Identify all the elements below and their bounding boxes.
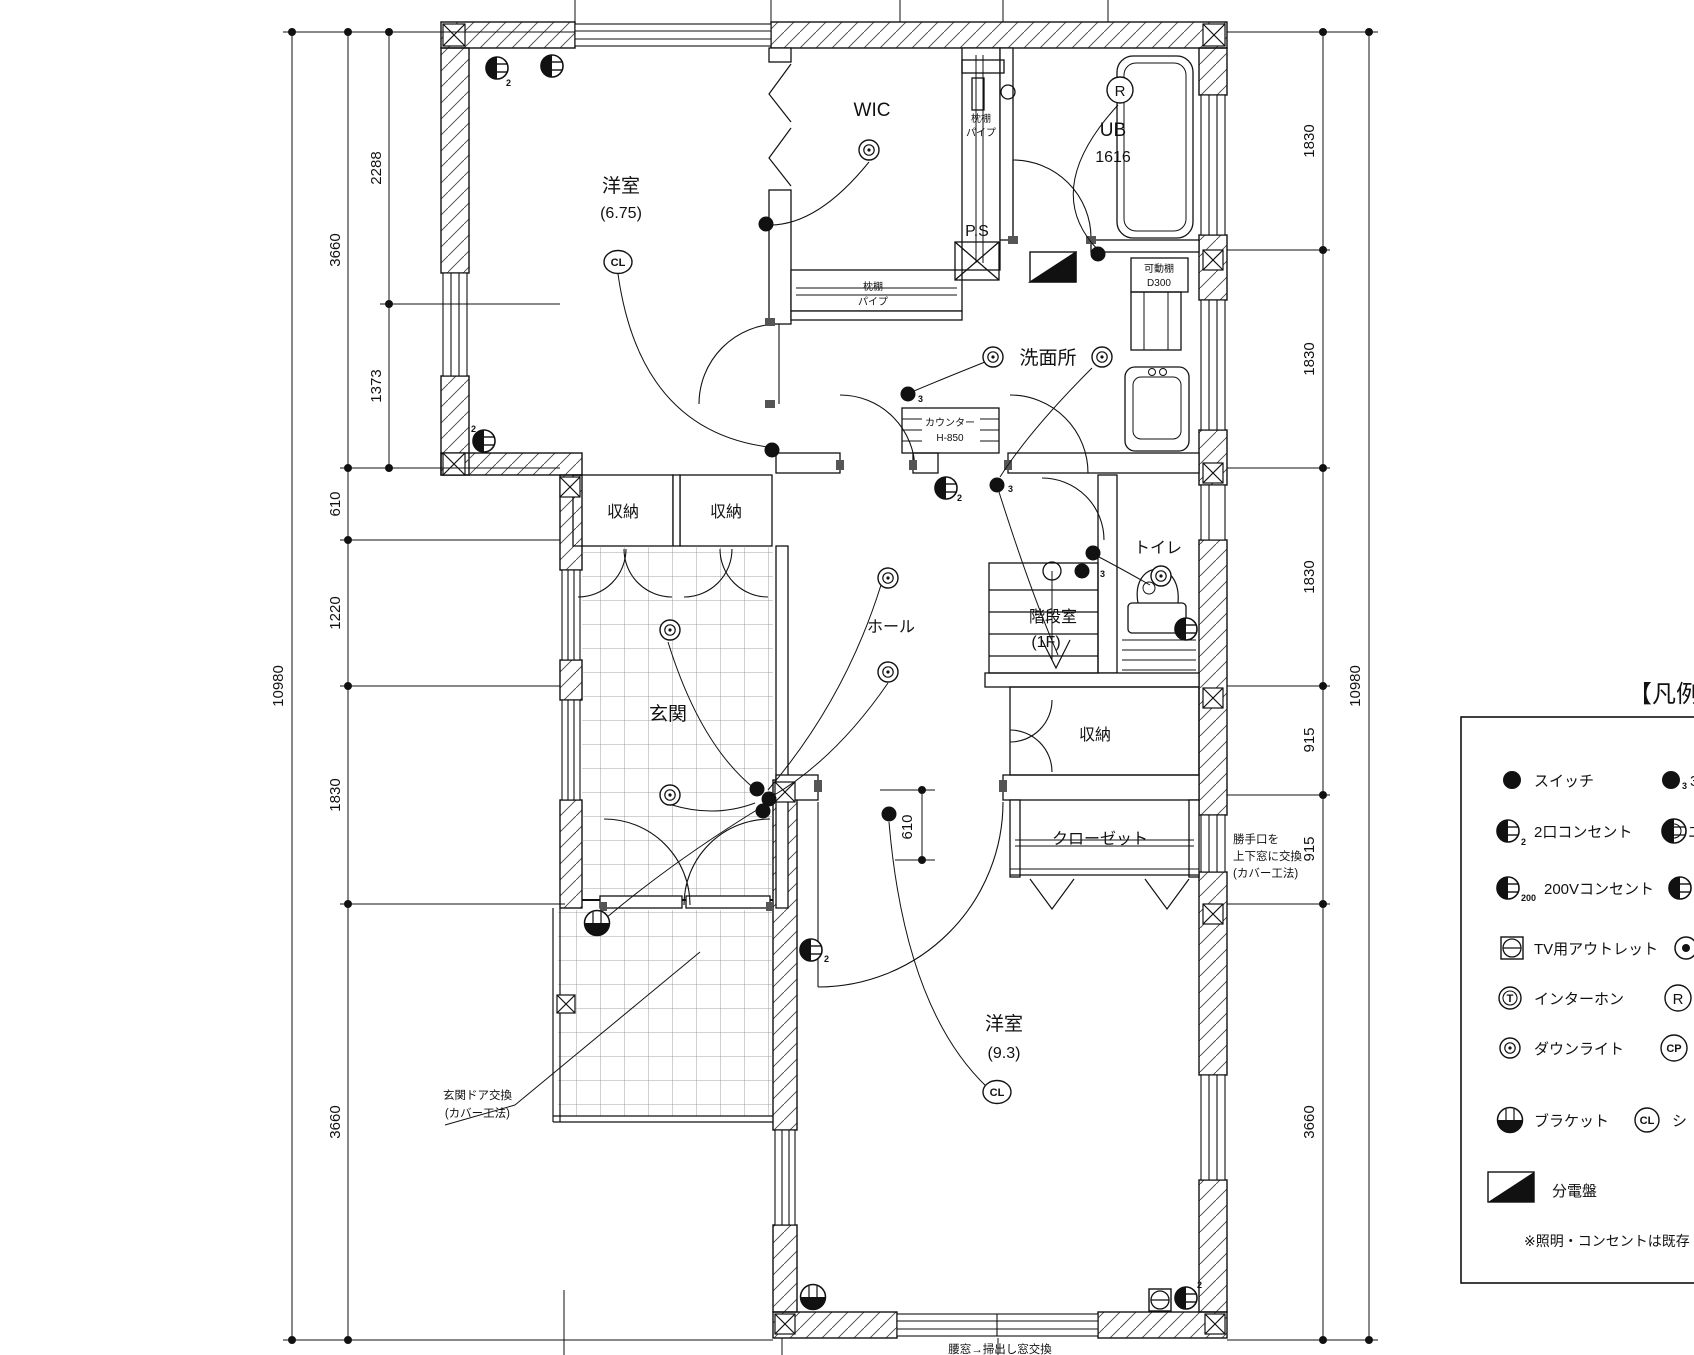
dim-right-1830b: 1830 [1301,342,1318,375]
window-right-ub [1201,95,1225,235]
label-kadou-dana-1: 可動棚 [1144,262,1174,275]
tv-outlet-93 [1149,1289,1171,1311]
label-youshitsu93: 洋室 [985,1013,1023,1035]
window-left-youshitsu675 [443,273,467,376]
window-top [575,24,771,46]
sub3-toire: 3 [1100,569,1105,579]
window-right-lower [1201,1075,1225,1180]
annotation-katteguchi-1: 勝手口を [1233,832,1279,846]
label-makura-side-1: 枕棚 [971,112,991,125]
sub3-hall: 3 [1008,484,1013,494]
switch-youshitsu675 [765,443,780,458]
outlet-93-bottom [1175,1287,1197,1309]
downlight-senmenjo-2 [1092,347,1112,367]
label-senmenjo: 洗面所 [1019,347,1076,369]
sub2-93left: 2 [824,954,829,964]
switch3-hall-top [990,478,1005,493]
sub2-675c: 2 [471,424,476,434]
legend-tv: TV用アウトレット [1534,941,1658,958]
legend-outlet2-sub: 2 [1521,837,1526,847]
legend-t-sym: T [1507,993,1514,1005]
downlight-hall-2 [878,662,898,682]
dim-left-3660a: 3660 [327,233,344,266]
dim-left-2288: 2288 [368,151,385,184]
label-kaidan-floor: (1F) [1031,634,1060,651]
dim-right-1830c: 1830 [1301,560,1318,593]
legend-switch3-label: 3 [1690,773,1694,790]
window-bottom-hakidashi [897,1314,1098,1336]
downlight-senmenjo-1 [983,347,1003,367]
cl-text-2: CL [990,1087,1005,1099]
switch-genkan-3 [756,804,771,819]
annotation-katteguchi-2: 上下窓に交換 [1233,849,1302,863]
downlight-hall-1 [878,568,898,588]
label-ub-size: 1616 [1095,149,1131,166]
label-genkan: 玄関 [649,703,687,725]
legend-r-sym: R [1673,991,1684,1008]
dim-left-1373: 1373 [368,369,385,402]
label-counter-2: H-850 [936,433,964,444]
legend-note: ※照明・コンセントは既存 [1524,1233,1690,1249]
sub2-93bottom: 2 [1197,1280,1202,1290]
legend-title: 【凡例】 [1628,681,1694,708]
cl-youshitsu675: CL [604,251,632,274]
switch3-toire-b [1075,564,1090,579]
floor-plan-canvas: CL CL R 2 2 2 2 2 3 3 3 [0,0,1694,1355]
label-wic: WIC [854,100,891,121]
legend-switch3-sub: 3 [1682,781,1687,791]
dim-right-1830a: 1830 [1301,124,1318,157]
annotation-genkan-door-2: (カバー工法) [445,1106,510,1120]
downlight-genkan-1 [660,620,680,640]
r-symbol-ub: R [1107,77,1133,103]
label-makura-bottom-2: パイプ [858,296,888,308]
sub2-675a: 2 [506,78,511,88]
sub3-senmenjo: 3 [918,394,923,404]
dim-right-915b: 915 [1301,836,1318,861]
dim-left-610: 610 [327,491,344,516]
window-katteguchi [1201,815,1225,872]
label-closet: クローゼット [1052,830,1148,848]
label-makura-side-2: パイプ [966,127,996,139]
dim-right-915a: 915 [1301,727,1318,752]
outlet-toire [1175,618,1197,640]
legend-200v-sub: 200 [1521,893,1536,903]
legend: 【凡例】 スイッチ 3 3 2 2口コンセント エ 200 200Vコンセント … [1461,681,1694,1283]
window-genkan-a [562,570,580,660]
window-right-toire [1201,485,1225,540]
counter [902,408,999,453]
bracket-porch [585,911,610,936]
dim-left-overall: 10980 [270,665,287,707]
switch-youshitsu93 [882,807,897,822]
dim-left-3660b: 3660 [327,1105,344,1138]
legend-200v: 200Vコンセント [1544,881,1654,898]
cl-text-1: CL [611,257,626,269]
label-youshitsu675: 洋室 [602,175,640,197]
distribution-board [1030,252,1076,282]
label-youshitsu675-area: (6.75) [600,205,642,222]
label-kadou-dana-2: D300 [1147,278,1171,289]
legend-interphone: インターホン [1534,991,1624,1008]
legend-cl-sym: CL [1640,1115,1655,1127]
porch-tiles [558,910,773,1116]
label-kaidan: 階段室 [1029,608,1077,626]
dim-mid-610: 610 [899,814,916,839]
label-shuunou-a: 収納 [607,503,639,521]
window-left-lower [775,1130,795,1225]
legend-ceiling-label: シ [1672,1113,1687,1130]
window-genkan-b [562,700,580,800]
outlet-93-left [800,939,822,961]
legend-bracket: ブラケット [1534,1112,1609,1130]
switch3-senmenjo [901,387,916,402]
r-text: R [1115,83,1126,100]
annotation-katteguchi-3: (カバー工法) [1233,866,1298,880]
floor-plan-svg: CL CL R 2 2 2 2 2 3 3 3 [0,0,1694,1355]
label-ps: P.S [965,223,989,240]
switch-ub [1091,247,1106,262]
legend-bunden: 分電盤 [1552,1183,1597,1200]
label-ub: UB [1100,120,1126,141]
legend-outlet2: 2口コンセント [1534,824,1632,841]
legend-aircon-label: エ [1688,824,1694,841]
downlight-toire [1151,566,1171,586]
label-shuunou-b: 収納 [710,503,742,521]
legend-cp-sym: CP [1666,1043,1681,1055]
legend-downlight: ダウンライト [1534,1041,1624,1058]
label-counter-1: カウンター [925,417,975,429]
downlight-genkan-2 [660,785,680,805]
sub2-hall: 2 [957,493,962,503]
outlet-hall [935,477,957,499]
switch-genkan-1 [750,782,765,797]
annotation-genkan-door-1: 玄関ドア交換 [443,1088,512,1102]
label-youshitsu93-area: (9.3) [988,1045,1021,1062]
washbasin [1125,367,1189,451]
dim-left-1830: 1830 [327,778,344,811]
label-makura-bottom-1: 枕棚 [863,280,883,293]
label-shuunou-c: 収納 [1079,726,1111,744]
dim-left-1220: 1220 [327,596,344,629]
downlight-wic [859,140,879,160]
window-right-senmenjo [1201,300,1225,430]
switch-toire-a [1086,546,1101,561]
outlet-675-b [541,55,563,77]
outlet-675-c [473,430,495,452]
switch-wic [759,217,774,232]
annotation-koshimado: 腰窓→掃出し窓交換 [948,1342,1052,1355]
label-toire: トイレ [1134,540,1182,557]
legend-switch: スイッチ [1534,773,1594,790]
label-hall: ホール [867,619,915,636]
dim-right-overall: 10980 [1347,665,1364,707]
dim-right-3660: 3660 [1301,1105,1318,1138]
outlet-675-a [486,57,508,79]
bracket-93 [801,1285,826,1310]
cl-youshitsu93: CL [983,1081,1011,1104]
